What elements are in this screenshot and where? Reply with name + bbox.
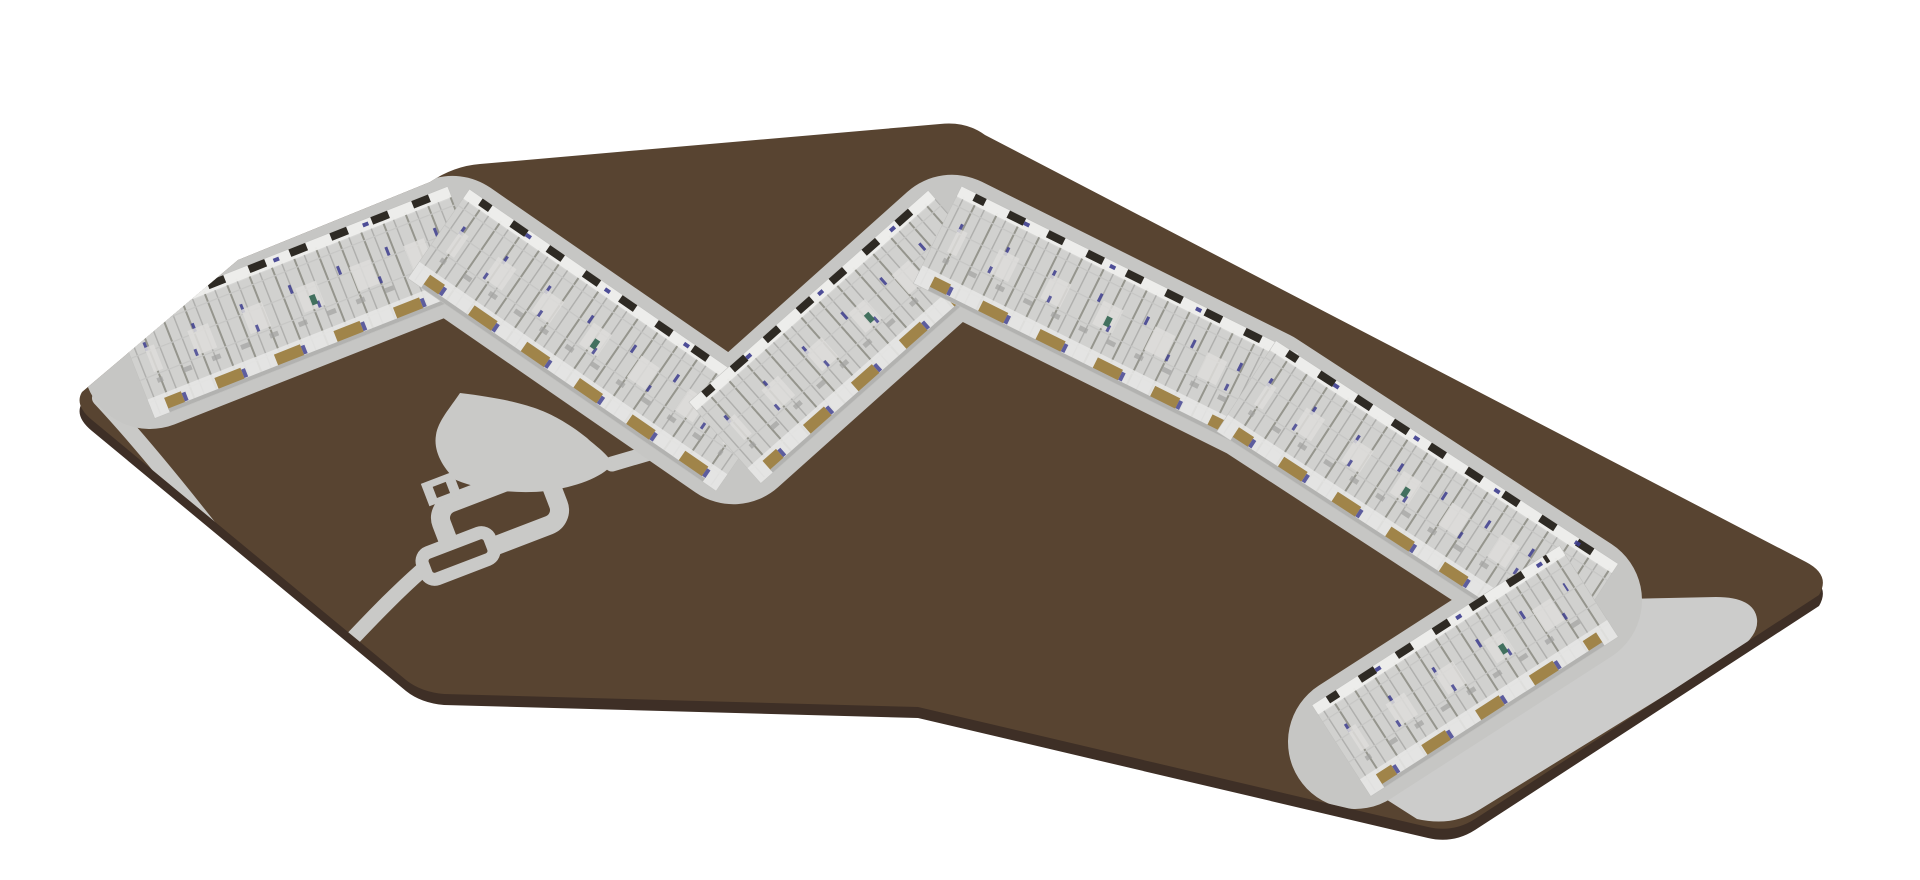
site-model-canvas[interactable] (0, 0, 1920, 880)
model-viewport[interactable] (0, 0, 1920, 880)
